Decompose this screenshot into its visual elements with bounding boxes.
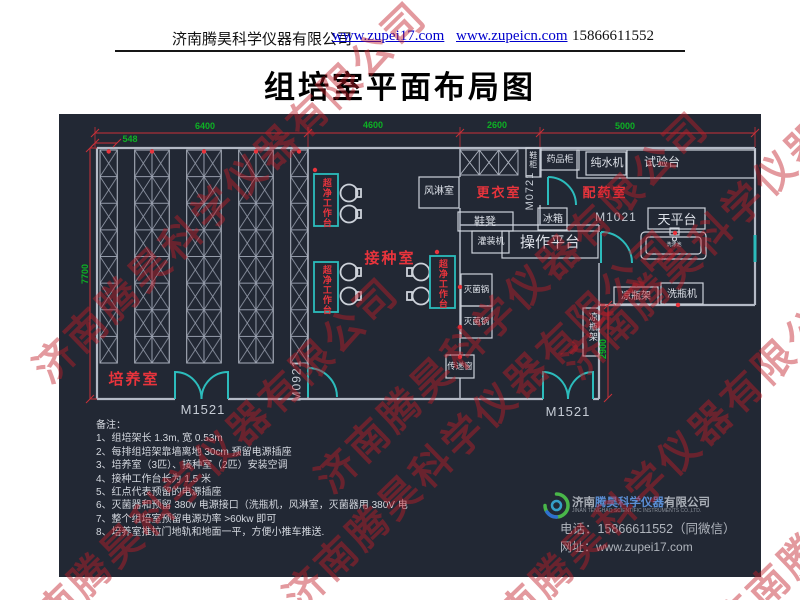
note-item: 6、灭菌器和预留 380v 电源接口（洗瓶机，风淋室，灭菌器用 380V 电	[96, 499, 408, 512]
header-rule	[115, 50, 685, 52]
label-test-bench: 试验台	[642, 156, 682, 169]
label-sink: 洗涤池	[663, 243, 685, 249]
door-m0921	[308, 368, 337, 397]
floor-plan-panel: 6400 4600 2600 5000 548 7700 2900 培养室 接种…	[59, 114, 761, 577]
door-label-m1521-left: M1521	[163, 403, 243, 417]
footer-logo-block: 济南腾昊科学仪器有限公司 JINAN TENGHAO SCIENTIFIC IN…	[543, 490, 758, 562]
note-item: 7、整个组培室预留电源功率 >60kw 即可	[96, 513, 408, 526]
footer-web-value[interactable]: www.zupei17.com	[596, 540, 693, 554]
room-label-cultivation: 培养室	[89, 372, 179, 389]
header-phone: 15866611552	[572, 28, 654, 45]
notes-title: 备注：	[96, 419, 408, 432]
culture-rack-columns	[100, 150, 308, 363]
label-shoe-bench: 鞋凳	[465, 216, 505, 228]
dim-2600: 2600	[477, 121, 517, 131]
footer-phone-row: 电话：15866611552（同微信）	[560, 518, 736, 537]
label-bottle-rack-h: 凉瓶架	[614, 291, 658, 302]
room-label-dispensing: 配药室	[565, 186, 645, 200]
dim-7700: 7700	[81, 254, 91, 294]
note-item: 2、每排组培架靠墙离地 30cm 预留电源插座	[96, 446, 408, 459]
footer-web-row: 网址：www.zupei17.com	[560, 538, 693, 555]
door-m1021	[601, 232, 632, 263]
stool-circles	[341, 185, 430, 305]
label-clean-bench-1: 超净工作台	[321, 178, 331, 228]
door-label-m0921: M0921	[290, 359, 303, 403]
dim-548: 548	[113, 135, 147, 145]
header-link-zupeicn[interactable]: www.zupeicn.com	[456, 28, 568, 45]
label-air-shower: 风淋室	[419, 186, 459, 197]
note-item: 8、培养室推拉门地轨和地面一平，方便小推车推送.	[96, 526, 408, 539]
footer-web-label: 网址：	[560, 540, 596, 554]
label-clean-bench-3: 超净工作台	[437, 259, 447, 309]
label-medicine-cabinet: 药品柜	[541, 155, 579, 165]
label-shoe-cabinet: 鞋柜	[528, 151, 537, 169]
label-clean-bench-2: 超净工作台	[321, 265, 331, 315]
label-fridge: 冰箱	[538, 214, 568, 225]
note-item: 1、组培架长 1.3m, 宽 0.53m	[96, 432, 408, 445]
locker-rack	[460, 150, 518, 175]
page-title: 组培室平面布局图	[0, 62, 800, 107]
room-label-inoculation: 接种室	[345, 251, 435, 268]
footer-phone-value: 15866611552（同微信）	[598, 522, 736, 536]
dim-5000: 5000	[605, 122, 645, 132]
notes-block: 备注： 1、组培架长 1.3m, 宽 0.53m 2、每排组培架靠墙离地 30c…	[96, 419, 408, 540]
door-m1521-right	[543, 372, 568, 399]
footer-company-name-en: JINAN TENGHAO SCIENTIFIC INSTRUMENTS CO.…	[572, 508, 701, 514]
label-pass-window: 传递窗	[446, 362, 474, 371]
label-operation-platform: 操作平台	[502, 235, 598, 252]
label-pure-water: 纯水机	[588, 157, 626, 169]
dim-6400: 6400	[185, 122, 225, 132]
label-bottle-washer: 洗瓶机	[661, 289, 703, 300]
page: 济南腾昊科学仪器有限公司 www.zupei17.com www.zupeicn…	[0, 0, 800, 600]
label-sterilizer-1: 灭菌锅	[461, 285, 492, 294]
header-company-name: 济南腾昊科学仪器有限公司	[172, 28, 352, 49]
door-label-m1021: M1021	[586, 211, 646, 224]
label-sterilizer-2: 灭菌锅	[461, 317, 492, 326]
note-item: 3、培养室（3匹）、接种室（2匹）安装空调	[96, 459, 408, 472]
equipment-outlines	[419, 148, 755, 378]
company-logo-icon	[543, 492, 570, 519]
dim-2900: 2900	[599, 329, 609, 369]
note-item: 5、红点代表预留的电源插座	[96, 486, 408, 499]
label-balance: 天平台	[649, 213, 705, 227]
door-label-m0721: M0721	[524, 169, 536, 213]
dim-4600: 4600	[353, 121, 393, 131]
note-item: 4、接种工作台长为 1.5 米	[96, 473, 408, 486]
door-label-m1521-right: M1521	[528, 405, 608, 419]
footer-phone-label: 电话：	[560, 522, 598, 536]
label-bottle-rack-v: 凉瓶架	[587, 312, 597, 342]
header-link-zupei17[interactable]: www.zupei17.com	[332, 28, 444, 45]
